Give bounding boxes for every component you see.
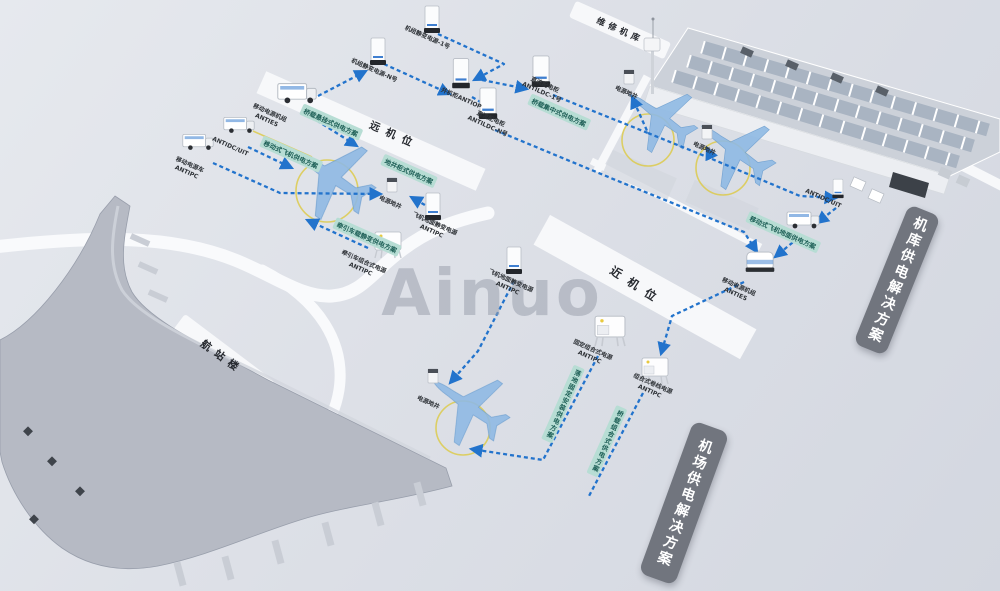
equipment-label-tractor-combo: 牵引车组合式电源 ANTIPC [337, 249, 387, 283]
equipment-label-dc-uit-left: ANTIDC/UIT [211, 136, 250, 159]
zone-label-remote-stand: 远机位 [367, 117, 421, 152]
tag-pit-cabinet: 地井柜式供电方案 [380, 154, 438, 189]
zone-label-near-stand: 近机位 [607, 263, 667, 310]
equipment-label-mobile-genset-left: 移动电源机组 ANTIES [248, 103, 287, 132]
equipment-label-parallel-cabinet: 并机柜ANTIOP [440, 87, 483, 112]
solution-banner-airport: 机场供电解决方案 [638, 420, 729, 585]
airport-power-solution-diagram: Ainuo 维修机库 远机位 近机位 航站楼 机库供电解决方案 机场供电解决方案… [0, 0, 1000, 591]
tag-bridge-combined: 桥载组合式供电方案 [587, 405, 628, 477]
equipment-label-dc-cabinet-n: 直流配电柜 ANTILDC-N号 [466, 107, 511, 139]
equipment-label-sfc-remote: 飞机地面静变电源 ANTIPC [408, 211, 458, 245]
equipment-label-power-pit: 电源地井 [415, 395, 440, 412]
equipment-label-dc-uit-right: ANTIDC/UIT [804, 188, 843, 211]
equipment-label-genset-1: 机组静变电源-1号 [403, 25, 451, 52]
tag-mobile-ground: 移动式飞机地面供电方案 [745, 211, 821, 253]
equipment-label-mobile-cart: 移动电源车 ANTIPC [171, 156, 205, 182]
zone-label-terminal: 航站楼 [198, 336, 247, 377]
zone-label-hangar: 维修机库 [595, 14, 646, 45]
equipment-label-power-pit: 电源地井 [691, 141, 716, 158]
equipment-label-power-pit: 电源地井 [377, 195, 402, 212]
equipment-label-combo-reel: 组合式卷线电源 ANTIPC [629, 372, 674, 403]
equipment-label-power-pit: 电源地井 [613, 85, 638, 102]
tag-floor-fixed: 落地固定安装供电方案 [541, 365, 585, 444]
tag-bridge-suspended: 桥载悬挂式供电方案 [299, 103, 363, 140]
equipment-label-genset-n: 机组静变电源-N号 [350, 57, 398, 84]
equipment-label-mobile-genset-right: 移动电源机组 ANTIES [717, 277, 756, 306]
label-overlay: Ainuo 维修机库 远机位 近机位 航站楼 机库供电解决方案 机场供电解决方案… [0, 0, 1000, 591]
tag-mobile-aircraft: 移动式飞机供电方案 [259, 135, 323, 172]
solution-banner-hangar: 机库供电解决方案 [853, 204, 941, 356]
